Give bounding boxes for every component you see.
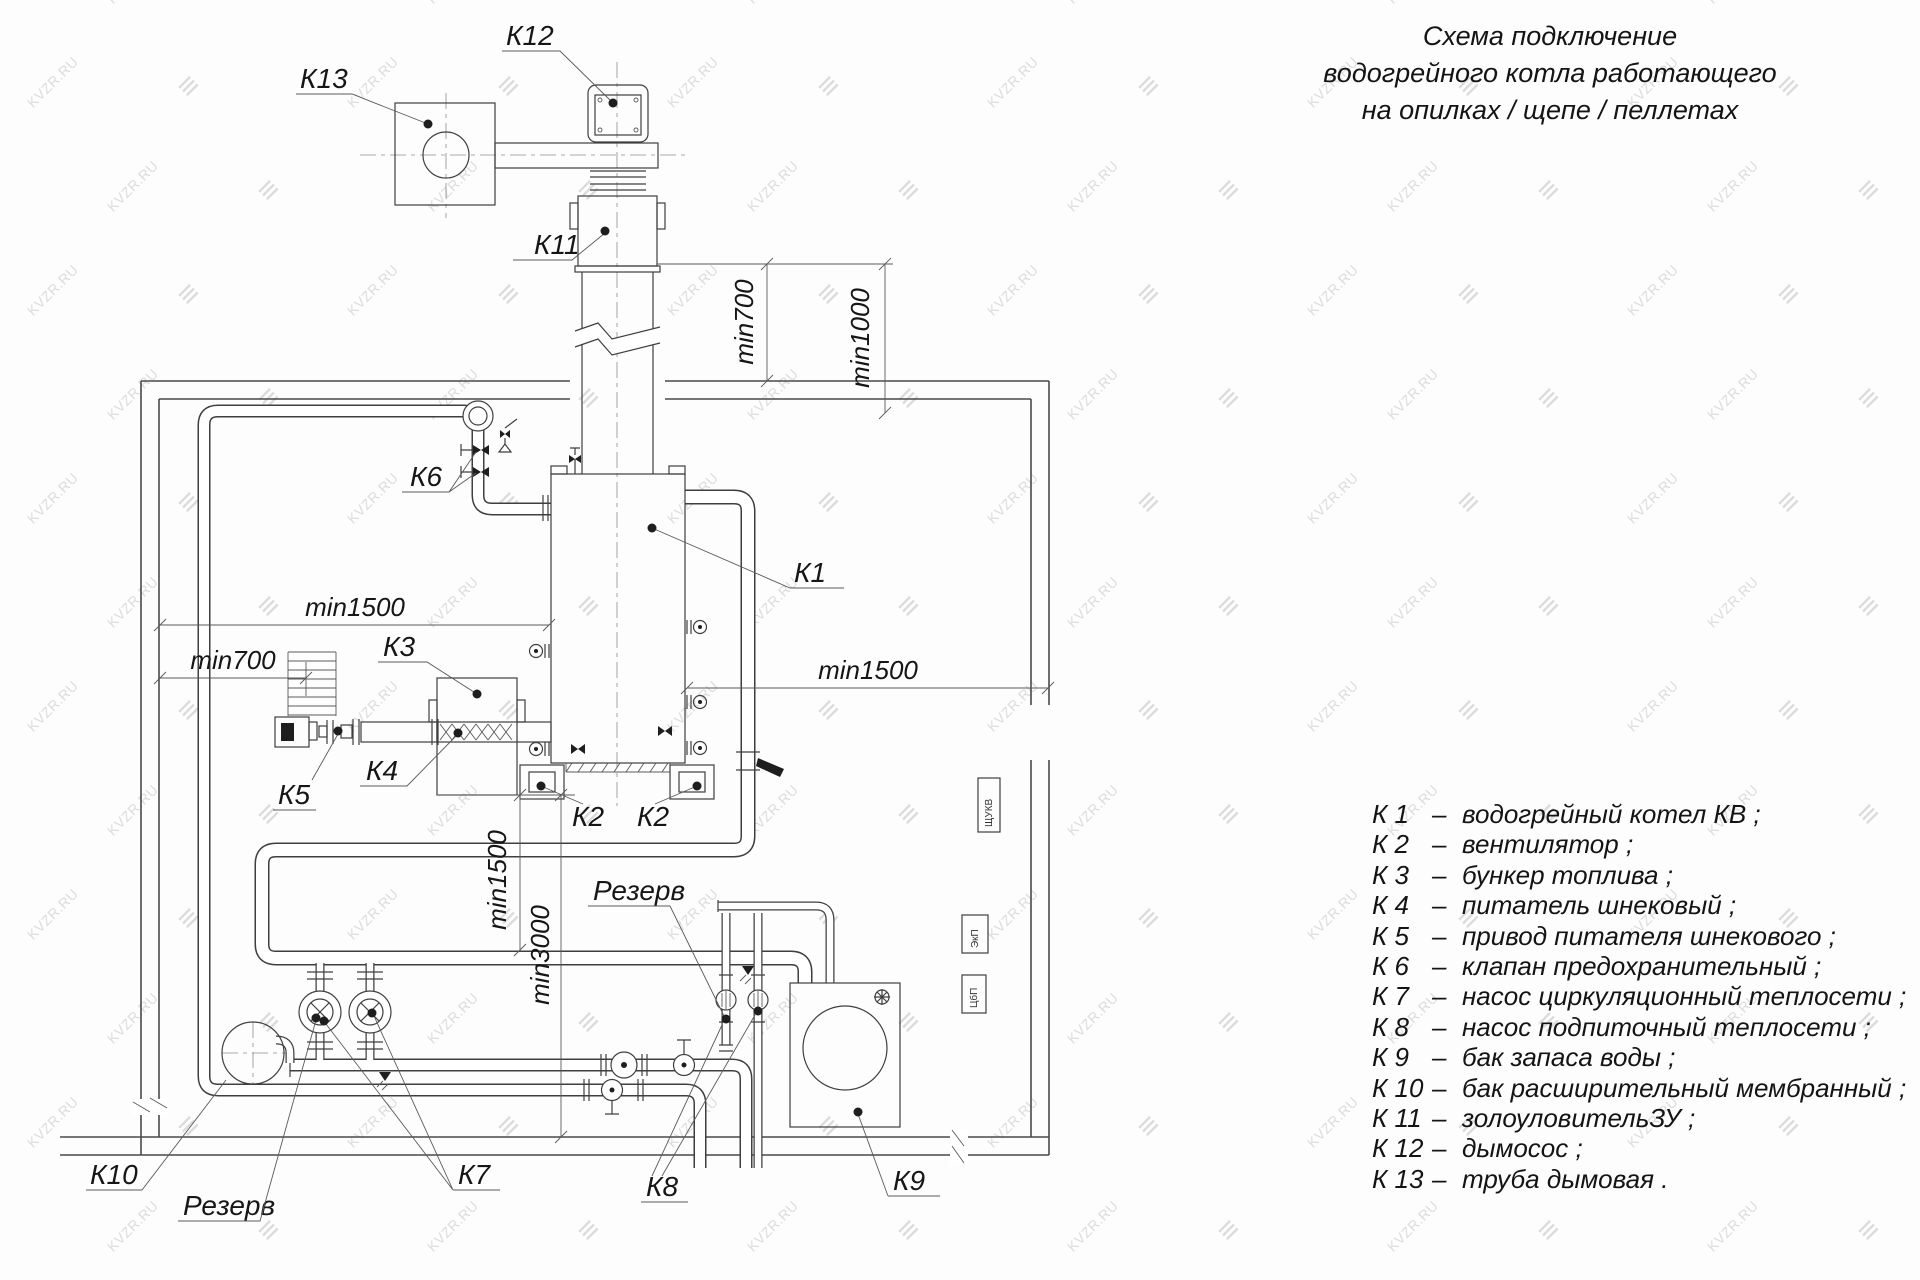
legend-text: клапан предохранительный ;: [1462, 951, 1912, 981]
label-k10: К10: [90, 1159, 138, 1190]
legend-num: К 10: [1372, 1073, 1432, 1103]
legend-text: труба дымовая .: [1462, 1164, 1912, 1194]
dim-min700-top: min700: [729, 279, 759, 365]
legend-text: привод питателя шнекового ;: [1462, 921, 1912, 951]
legend-dash: –: [1432, 890, 1462, 920]
legend-text: бак расширительный мембранный ;: [1462, 1073, 1912, 1103]
dim-min1500-left: min1500: [305, 592, 405, 622]
legend-text: водогрейный котел КВ ;: [1462, 799, 1912, 829]
legend-dash: –: [1432, 1012, 1462, 1042]
water-tank-k9: [790, 983, 900, 1127]
legend-num: К 9: [1372, 1042, 1432, 1072]
legend-num: К 3: [1372, 860, 1432, 890]
label-k11: К11: [534, 229, 580, 260]
flue-duct-horizontal: [495, 143, 658, 168]
legend-dash: –: [1432, 1164, 1462, 1194]
legend-dash: –: [1432, 799, 1462, 829]
label-k2-left: К2: [572, 801, 605, 832]
title-line-1: Схема подключение: [1310, 18, 1790, 55]
label-k3: К3: [383, 631, 416, 662]
legend-item: К 6–клапан предохранительный ;: [1372, 951, 1912, 981]
dim-min3000: min3000: [525, 905, 555, 1005]
legend-num: К 12: [1372, 1133, 1432, 1163]
boiler-k1: [530, 448, 707, 763]
label-k9: К9: [893, 1165, 925, 1196]
legend-item: К 9–бак запаса воды ;: [1372, 1042, 1912, 1072]
legend-text: бак запаса воды ;: [1462, 1042, 1912, 1072]
label-reserve-2: Резерв: [593, 875, 685, 906]
tank-vent-icon: [874, 989, 890, 1005]
dimensions: min700 min1000 min1500 min700 min1500 mi…: [154, 258, 1054, 1143]
legend-item: К 4–питатель шнековый ;: [1372, 890, 1912, 920]
legend-dash: –: [1432, 860, 1462, 890]
legend-item: К 2–вентилятор ;: [1372, 829, 1912, 859]
legend-dash: –: [1432, 1073, 1462, 1103]
legend-num: К 5: [1372, 921, 1432, 951]
legend-item: К 8–насос подпиточный теплосети ;: [1372, 1012, 1912, 1042]
page: { "watermark": { "text": "KVZR.RU", "col…: [0, 0, 1920, 1280]
legend-num: К 4: [1372, 890, 1432, 920]
drawing-title: Схема подключение водогрейного котла раб…: [1310, 18, 1790, 129]
service-ladder: [288, 652, 336, 716]
legend-item: К 7–насос циркуляционный теплосети ;: [1372, 981, 1912, 1011]
legend-num: К 1: [1372, 799, 1432, 829]
panel-label-3: ЦбП: [968, 988, 980, 1008]
callouts: К13 К12 К11 К1 К6 К3 К4 К5 К2 К2 К10 Рез…: [86, 20, 940, 1221]
wall-break-left: [133, 1098, 167, 1115]
label-k4: К4: [366, 755, 398, 786]
dim-min1500-vert: min1500: [482, 830, 512, 930]
legend-text: дымосос ;: [1462, 1133, 1912, 1163]
wall-break-bottom: [950, 1130, 968, 1164]
legend-num: К 6: [1372, 951, 1432, 981]
circulation-pumps-k7: [299, 963, 391, 1060]
panel-label-1: ЩУКВ: [984, 798, 995, 827]
title-line-3: на опилках / щепе / пеллетах: [1310, 92, 1790, 129]
centerlines: [222, 62, 690, 1086]
legend: К 1–водогрейный котел КВ ; К 2–вентилято…: [1372, 799, 1912, 1194]
legend-num: К 11: [1372, 1103, 1432, 1133]
legend-item: К 5–привод питателя шнекового ;: [1372, 921, 1912, 951]
legend-item: К 13–труба дымовая .: [1372, 1164, 1912, 1194]
legend-item: К 11–золоуловительЗУ ;: [1372, 1103, 1912, 1133]
label-k12: К12: [506, 20, 554, 51]
relief-valve-icon: [499, 419, 517, 452]
boiler-inner-valves: [571, 726, 672, 754]
legend-text: насос циркуляционный теплосети ;: [1462, 981, 1912, 1011]
legend-text: бункер топлива ;: [1462, 860, 1912, 890]
dim-min1500-right: min1500: [818, 655, 918, 685]
label-k13: К13: [300, 63, 348, 94]
ash-collector-k11: [570, 171, 665, 474]
boiler-side-nozzles: [530, 620, 707, 756]
boiler-top-valve: [569, 448, 581, 474]
legend-item: К 1–водогрейный котел КВ ;: [1372, 799, 1912, 829]
dim-min1000: min1000: [845, 288, 875, 388]
legend-text: питатель шнековый ;: [1462, 890, 1912, 920]
legend-dash: –: [1432, 981, 1462, 1011]
screw-feeder-k4: [353, 719, 551, 745]
wall-panels: ЩУКВ ЭкП ЦбП: [962, 778, 1000, 1013]
legend-item: К 12–дымосос ;: [1372, 1133, 1912, 1163]
safety-valves-k6: [461, 401, 517, 478]
legend-num: К 7: [1372, 981, 1432, 1011]
legend-text: насос подпиточный теплосети ;: [1462, 1012, 1912, 1042]
legend-dash: –: [1432, 951, 1462, 981]
legend-text: вентилятор ;: [1462, 829, 1912, 859]
legend-num: К 2: [1372, 829, 1432, 859]
legend-dash: –: [1432, 1042, 1462, 1072]
label-k1: К1: [794, 557, 826, 588]
legend-dash: –: [1432, 829, 1462, 859]
legend-num: К 8: [1372, 1012, 1432, 1042]
duct-break-symbol: [575, 323, 660, 355]
legend-num: К 13: [1372, 1164, 1432, 1194]
makeup-pumps-k8: [716, 900, 830, 1168]
chimney-base-k13: [395, 103, 495, 205]
legend-dash: –: [1432, 921, 1462, 951]
legend-text: золоуловительЗУ ;: [1462, 1103, 1912, 1133]
label-k2-right: К2: [637, 801, 670, 832]
smoke-exhauster-k12: [588, 85, 648, 142]
legend-item: К 10–бак расширительный мембранный ;: [1372, 1073, 1912, 1103]
dim-min700-left: min700: [190, 645, 276, 675]
label-k7: К7: [458, 1159, 492, 1190]
title-line-2: водогрейного котла работающего: [1310, 55, 1790, 92]
legend-dash: –: [1432, 1103, 1462, 1133]
legend-dash: –: [1432, 1133, 1462, 1163]
legend-item: К 3–бункер топлива ;: [1372, 860, 1912, 890]
label-k6: К6: [410, 461, 443, 492]
label-k5: К5: [278, 779, 311, 810]
panel-label-2: ЭкП: [970, 929, 981, 948]
